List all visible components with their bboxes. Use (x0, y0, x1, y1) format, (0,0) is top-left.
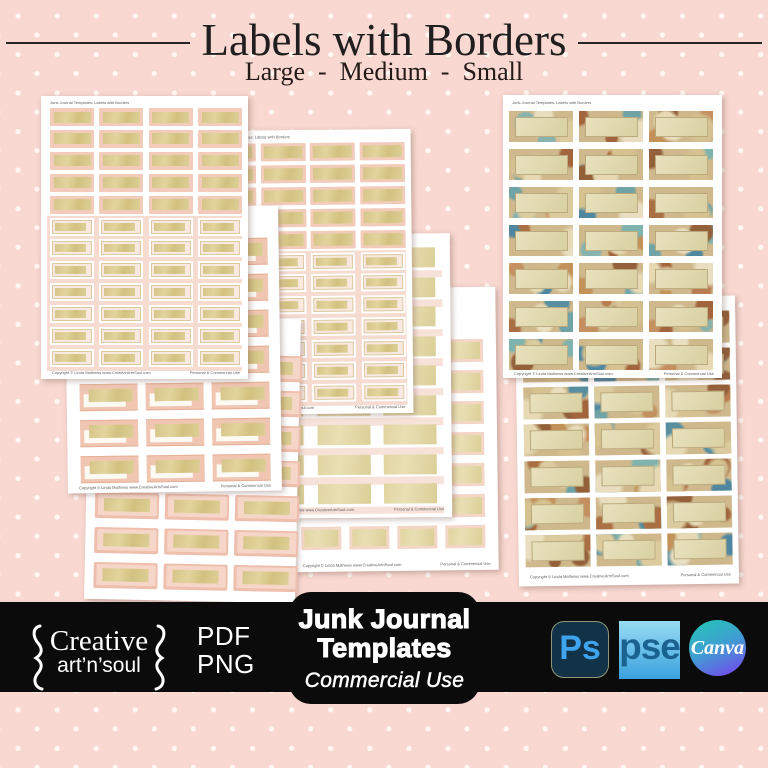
svg-text:art’n’soul: art’n’soul (57, 654, 141, 677)
svg-text:Creative: Creative (50, 625, 148, 657)
